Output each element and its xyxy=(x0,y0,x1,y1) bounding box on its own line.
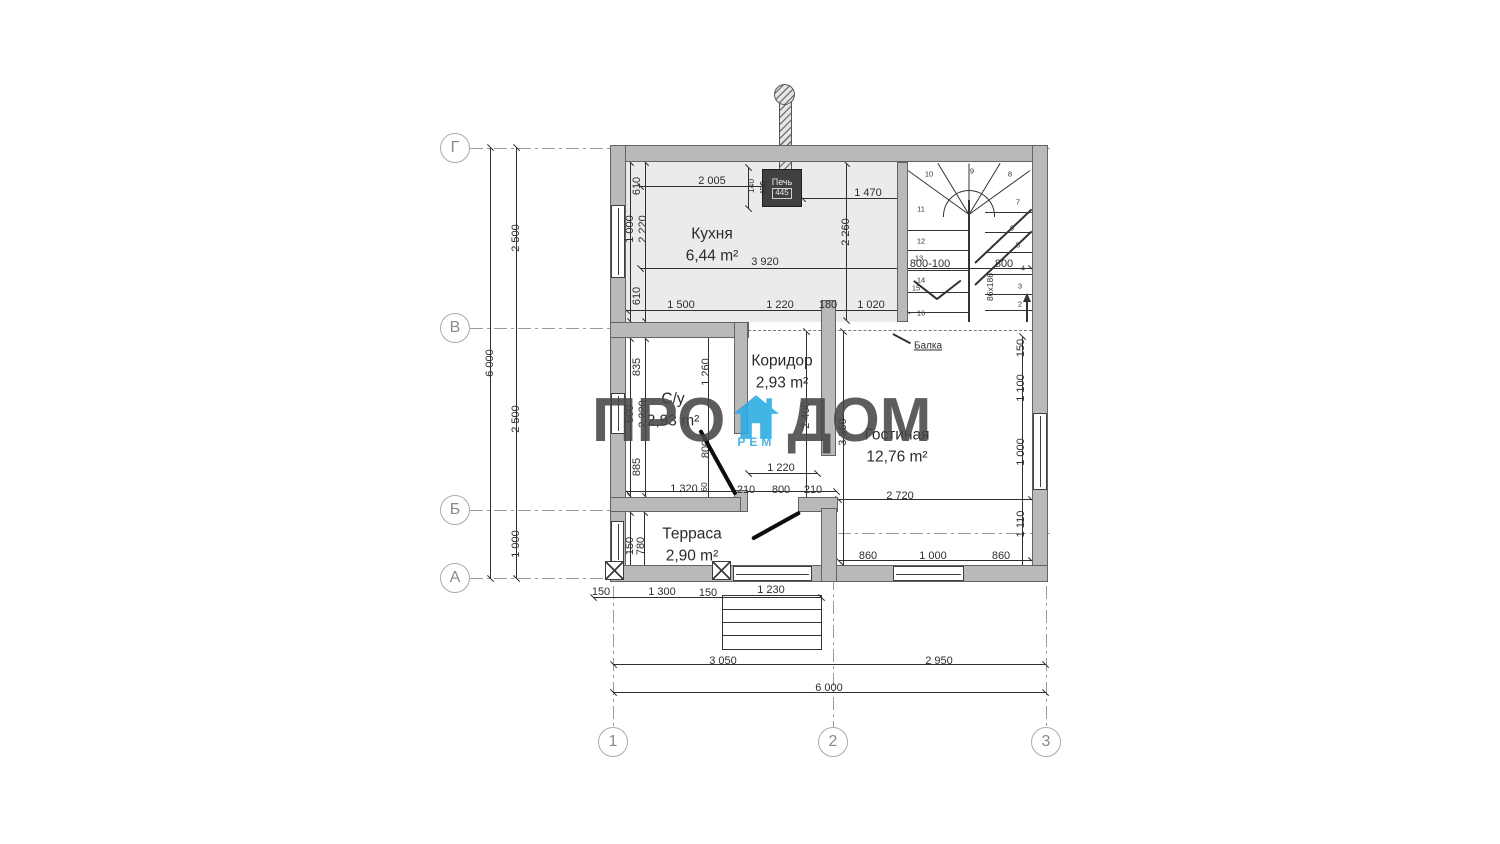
dim-label: 2 260 xyxy=(840,218,852,246)
wall-corridor-right-lower xyxy=(821,508,837,582)
axis-bubble-row: Б xyxy=(440,495,470,525)
terrace-entry-opening xyxy=(733,566,812,581)
dim-label: 210 xyxy=(804,484,822,496)
dim-label: 1 000 xyxy=(624,215,636,243)
stair-step-number: 10 xyxy=(925,170,933,179)
dim-label: 2 500 xyxy=(510,224,522,252)
stair-step-number: 7 xyxy=(1016,198,1020,207)
dim-label: 2 500 xyxy=(510,405,522,433)
dim-line-3920 xyxy=(640,268,1032,269)
dim-label: 3 920 xyxy=(751,256,779,268)
axis-line-v xyxy=(470,328,612,329)
stair-step-number: 5 xyxy=(1016,241,1020,250)
dim-label: 2 220 xyxy=(637,215,649,243)
dim-label: 6 000 xyxy=(815,682,843,694)
dim-label: 1 260 xyxy=(700,358,712,386)
dim-label: 610 xyxy=(631,287,643,305)
dim-label: 150 xyxy=(592,586,610,598)
room-area: 6,44 m² xyxy=(686,245,739,267)
dim-label: 1 000 xyxy=(510,530,522,558)
stair-step-number: 13 xyxy=(915,254,923,263)
watermark-text-dom: ДОМ xyxy=(787,390,931,452)
dim-label: 860 xyxy=(992,550,1010,562)
dim-label: 835 xyxy=(631,358,643,376)
room-label-кухня: Кухня6,44 m² xyxy=(686,223,739,266)
dim-label: 1 000 xyxy=(919,550,947,562)
window-living-bottom xyxy=(893,566,964,581)
dim-label: 150 xyxy=(1015,339,1027,357)
beam-label: Балка xyxy=(914,341,942,352)
dim-label: 885 xyxy=(631,458,643,476)
window-living-right xyxy=(1033,413,1047,490)
stove: Печь 445 xyxy=(762,169,802,207)
dim-line-1470 xyxy=(802,198,903,199)
axis-bubble-col: 3 xyxy=(1031,727,1061,757)
dim-label: 2 950 xyxy=(925,655,953,667)
entry-steps xyxy=(722,595,822,650)
door-terrace-leaf xyxy=(751,511,801,541)
stair-step-number: 15 xyxy=(912,284,920,293)
wall-axis-b-left xyxy=(610,497,741,512)
dim-label: 1 100 xyxy=(1015,374,1027,402)
stair-step-number: 2 xyxy=(1018,300,1022,309)
wall-stairs-left xyxy=(897,162,908,322)
dim-line-left-chain xyxy=(516,148,517,578)
stair-step-number: 8 xyxy=(1008,170,1012,179)
dim-label: 210 xyxy=(737,484,755,496)
dim-label: 1 320 xyxy=(670,483,698,495)
stair-step-number: 12 xyxy=(917,237,925,246)
terrace-railing xyxy=(611,521,624,563)
watermark-text-rem: РЕМ xyxy=(737,435,775,449)
dim-label: 2 005 xyxy=(698,175,726,187)
dim-label: 1 230 xyxy=(757,584,785,596)
dim-label: 180 xyxy=(819,299,837,311)
dim-label: 1 300 xyxy=(648,586,676,598)
axis-bubble-col: 1 xyxy=(598,727,628,757)
stair-step-number: 3 xyxy=(1018,282,1022,291)
dim-label: 800 xyxy=(772,484,790,496)
watermark: ПРО РЕМ ДОМ xyxy=(592,390,931,452)
stair-step-number: 6 xyxy=(1010,224,1014,233)
stairs-step-line xyxy=(908,250,968,251)
dim-label: 1 020 xyxy=(857,299,885,311)
dim-label: 610 xyxy=(631,177,643,195)
room-name: Кухня xyxy=(686,223,739,245)
dim-label: 1 220 xyxy=(766,299,794,311)
room-name: Коридор xyxy=(751,350,812,372)
axis-bubble-row: А xyxy=(440,563,470,593)
stairs-step-line xyxy=(985,310,1032,311)
stove-label: Печь xyxy=(772,177,793,187)
axis-line-3 xyxy=(1046,586,1047,728)
dim-label: 1 000 xyxy=(1015,438,1027,466)
dim-label: 2 720 xyxy=(886,490,914,502)
stove-code: 445 xyxy=(772,188,791,199)
room-name: Терраса xyxy=(662,523,721,545)
wall-outer-top xyxy=(610,145,1048,162)
dim-label: 60 xyxy=(699,482,709,491)
beam-dashed-line xyxy=(748,330,1032,331)
dim-label: 6 000 xyxy=(484,349,496,377)
room-area: 2,90 m² xyxy=(662,545,721,567)
terrace-post-left xyxy=(605,561,624,580)
stair-step-number: 4 xyxy=(1021,264,1025,273)
axis-line-b xyxy=(470,510,612,511)
watermark-text-pro: ПРО xyxy=(592,390,725,452)
window-kitchen xyxy=(611,205,625,278)
dim-label: 800 xyxy=(995,258,1013,270)
dim-label: 86x186 xyxy=(985,273,995,301)
dim-label: 780 xyxy=(635,537,647,555)
floor-plan-canvas: Балка Печь 445 ПРО РЕМ xyxy=(0,0,1500,844)
axis-bubble-row: В xyxy=(440,313,470,343)
dim-label: 3 050 xyxy=(709,655,737,667)
beam-leader xyxy=(893,333,911,344)
dim-line-3050-2950 xyxy=(613,664,1046,665)
dim-label: 1 470 xyxy=(854,187,882,199)
axis-bubble-col: 2 xyxy=(818,727,848,757)
dim-label: 150 xyxy=(699,587,717,599)
wall-outer-right xyxy=(1032,145,1048,582)
axis-line-1 xyxy=(613,586,614,728)
wall-axis-v xyxy=(610,322,749,338)
stair-step-number: 9 xyxy=(970,167,974,176)
chimney-cap xyxy=(774,84,795,105)
stairs-down-arrow-right xyxy=(937,280,962,300)
stairs-step-line xyxy=(908,230,968,231)
stairs-step-line xyxy=(908,270,968,271)
dim-label: 140 xyxy=(746,179,756,193)
stair-step-number: 11 xyxy=(917,205,925,214)
axis-bubble-row: Г xyxy=(440,133,470,163)
dim-label: 1 220 xyxy=(767,462,795,474)
dim-label: 450 xyxy=(758,181,768,195)
dim-label: 1 500 xyxy=(667,299,695,311)
dim-label: 1 110 xyxy=(1015,511,1027,538)
house-icon xyxy=(731,393,781,441)
stairs-divider xyxy=(968,200,970,322)
stair-step-number: 16 xyxy=(917,309,925,318)
room-label-терраса: Терраса2,90 m² xyxy=(662,523,721,566)
dim-label: 860 xyxy=(859,550,877,562)
stairs-up-arrow-line xyxy=(1026,300,1028,322)
dim-line-2720 xyxy=(838,499,1032,500)
stairs-up-arrowhead xyxy=(1023,293,1031,302)
